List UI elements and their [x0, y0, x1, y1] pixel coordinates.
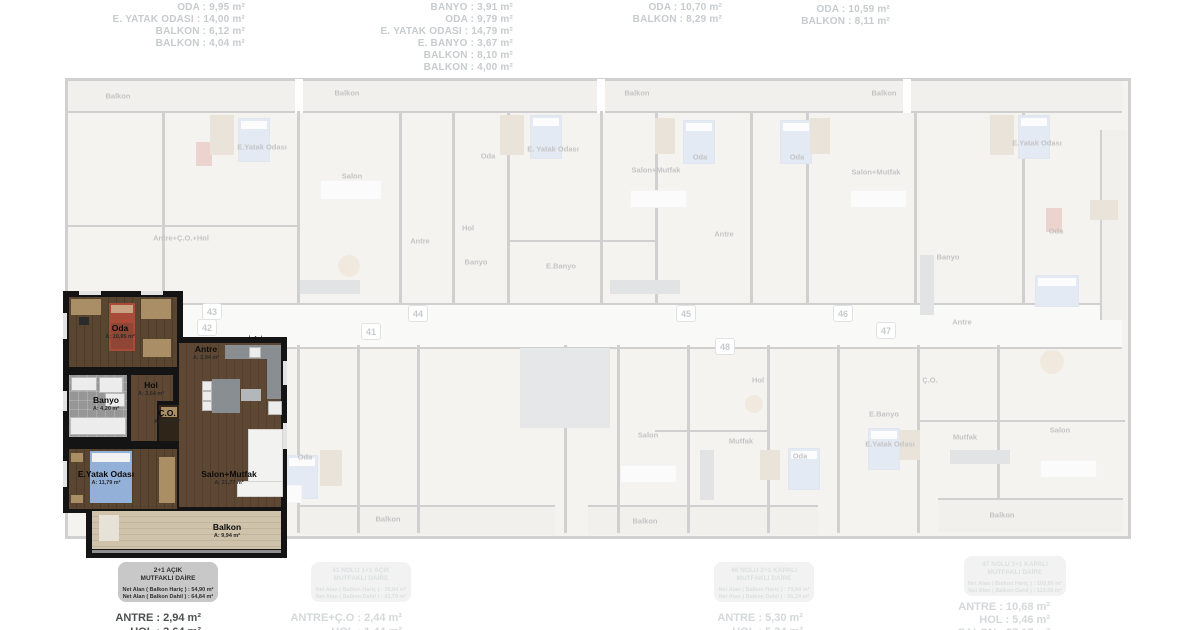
room-area: A: 10,95 m²: [105, 334, 134, 340]
wall: [600, 111, 603, 303]
kitchen-sink: [249, 347, 261, 358]
room-label: Oda A: 10,95 m²: [105, 324, 134, 340]
furniture-sofa: [630, 190, 687, 208]
faded-room-label: Ç.O.: [922, 376, 937, 385]
furniture-wardrobe: [1090, 200, 1118, 220]
net-area-excl: Net Alan ( Balkon Hariç ) : 54,90 m²: [118, 587, 218, 594]
furniture-wardrobe: [210, 115, 234, 155]
wall: [687, 345, 690, 533]
faded-room-label: Salon+Mutfak: [852, 168, 901, 177]
faded-room-label: Salon+Mutfak: [632, 166, 681, 175]
room-label: Balkon A: 9,94 m²: [213, 523, 241, 539]
unit-type-line1: 2+1 AÇIK: [118, 567, 218, 575]
area-list-line: E. BANYO : 3,67 m²: [263, 38, 513, 49]
room-label: Salon+Mutfak A: 21,77 m²: [201, 470, 257, 486]
furniture-nightstand: [71, 453, 83, 462]
stair-core: [520, 348, 610, 428]
fridge: [268, 401, 282, 415]
room-name: Salon+Mutfak: [201, 470, 257, 480]
faded-room-label: Salon: [638, 431, 658, 440]
unit-number-plate[interactable]: 41: [361, 323, 381, 340]
balcony-gap: [597, 79, 605, 113]
stove: [241, 389, 261, 401]
highlighted-unit[interactable]: ⊢◆⊣ Oda A: 10,95 m² Antre A: 2,94 m² Hol…: [63, 291, 287, 558]
unit-number-plate[interactable]: 43: [202, 303, 222, 320]
wall: [655, 430, 767, 432]
washing-machine: [99, 377, 123, 393]
faded-room-label: E.Yatak Odası: [865, 440, 915, 449]
unit-info-box[interactable]: 47 NOLU 3+1 KAPALI MUTFAKLI DAİRE Net Al…: [964, 556, 1066, 596]
faded-room-label: Balkon: [334, 89, 359, 98]
furniture-wardrobe: [655, 118, 675, 154]
selected-unit-room-line: ANTRE : 2,94 m²: [1, 612, 201, 624]
top-balcony-strip: [68, 81, 1122, 113]
bottom-balcony-strip: [588, 505, 818, 535]
room-name: Ç.O.: [154, 409, 180, 419]
furniture-wardrobe: [990, 115, 1014, 155]
window: [63, 391, 67, 411]
room-name: Antre: [193, 345, 219, 355]
wall: [917, 420, 1125, 422]
furniture-bed: [238, 118, 270, 162]
area-list-line: ODA : 9,95 m²: [0, 2, 245, 13]
wall: [767, 345, 770, 533]
wall: [452, 111, 455, 303]
room-area: A: 3,61 m²: [154, 419, 180, 425]
unit-type-line1: 47 NOLU 3+1 KAPALI: [964, 561, 1066, 569]
furniture-wardrobe: [320, 450, 342, 486]
furniture-bed: [1018, 115, 1050, 159]
faded-room-label: Hol: [752, 376, 764, 385]
area-list-line: E. YATAK ODASI : 14,00 m²: [0, 14, 245, 25]
area-list-line: BALKON : 6,12 m²: [0, 26, 245, 37]
furniture-wardrobe: [141, 299, 171, 319]
furniture-sofa: [850, 190, 907, 208]
kitchen-counter: [300, 280, 360, 294]
unit-room-line: HOL : 1,44 m²: [202, 626, 402, 630]
furniture-sofa: [320, 180, 382, 200]
room-name: Oda: [105, 324, 134, 334]
room-label: Antre A: 2,94 m²: [193, 345, 219, 361]
unit-type-line2: MUTFAKLI DAİRE: [714, 575, 814, 583]
wall: [837, 345, 840, 533]
faded-room-label: Mutfak: [953, 433, 977, 442]
window: [141, 291, 163, 295]
net-area-incl: Net Alan ( Balkon Dahil ) : 43,79 m²: [311, 594, 411, 601]
unit-number-plate[interactable]: 47: [876, 322, 896, 339]
wall: [68, 225, 297, 227]
unit-number-plate[interactable]: 46: [833, 305, 853, 322]
room-area: A: 3,64 m²: [138, 391, 164, 397]
faded-room-label: Balkon: [871, 89, 896, 98]
furniture-bed: [1035, 275, 1079, 307]
area-list-line: BALKON : 4,00 m²: [263, 62, 513, 73]
room-area: A: 2,94 m²: [193, 355, 219, 361]
faded-room-label: E.Banyo: [869, 410, 899, 419]
unit-type-line2: MUTFAKLI DAİRE: [964, 569, 1066, 577]
wall: [357, 345, 360, 533]
bed-pillow: [111, 305, 133, 313]
kitchen-counter: [610, 280, 680, 294]
unit-type-line1: 41 NOLU 1+1 AÇIK: [311, 567, 411, 575]
faded-room-label: Banyo: [937, 253, 960, 262]
furniture-desk: [71, 299, 101, 315]
unit-number-plate[interactable]: 45: [676, 305, 696, 322]
wall: [297, 111, 300, 303]
faded-room-label: Oda: [793, 452, 808, 461]
bar-stool: [202, 381, 212, 391]
faded-room-label: Balkon: [375, 515, 400, 524]
faded-room-label: E.Banyo: [546, 262, 576, 271]
unit-info-box[interactable]: 46 NOLU 2+1 KAPALI MUTFAKLI DAİRE Net Al…: [714, 562, 814, 602]
faded-room-label: E.Yatak Odası: [237, 143, 287, 152]
wall: [507, 240, 655, 242]
faded-room-label: Hol: [462, 224, 474, 233]
area-list-line: E. YATAK ODASI : 14,79 m²: [263, 26, 513, 37]
bar-stool: [202, 401, 212, 411]
faded-room-label: Salon: [342, 172, 362, 181]
kitchen-counter: [267, 345, 281, 399]
room-label: E.Yatak Odası A: 11,79 m²: [78, 470, 134, 486]
unit-number-plate[interactable]: 42: [197, 319, 217, 336]
faded-room-label: Oda: [1049, 227, 1064, 236]
furniture-table: [745, 395, 763, 413]
furniture-bed: [868, 428, 900, 470]
kitchen-counter: [700, 450, 714, 500]
net-area-incl: Net Alan ( Balkon Dahil ) : 95,34 m²: [714, 594, 814, 601]
net-area-incl: Net Alan ( Balkon Dahil ) : 64,84 m²: [118, 594, 218, 601]
balcony-gap: [903, 79, 911, 113]
unit-type-line1: 46 NOLU 2+1 KAPALI: [714, 567, 814, 575]
window: [79, 291, 101, 295]
balcony-gap: [295, 79, 303, 113]
unit-room-line: HOL : 5,46 m²: [850, 614, 1050, 626]
wall: [399, 111, 402, 303]
bathroom-sink: [71, 377, 97, 391]
window: [283, 361, 287, 385]
bar-stool: [202, 391, 212, 401]
unit-room-line: HOL : 5,34 m²: [603, 626, 803, 630]
unit-number-plate[interactable]: 44: [408, 305, 428, 322]
window: [63, 313, 67, 339]
unit-room-line: ANTRE+Ç.O : 2,44 m²: [202, 612, 402, 624]
room-balkon-floor: [92, 511, 281, 549]
unit-type-line2: MUTFAKLI DAİRE: [118, 575, 218, 583]
area-list-line: BALKON : 8,10 m²: [263, 50, 513, 61]
faded-room-label: Salon: [1050, 426, 1070, 435]
net-area-incl: Net Alan ( Balkon Dahil ) : 119,56 m²: [964, 588, 1066, 595]
faded-room-label: Oda: [481, 152, 496, 161]
net-area-excl: Net Alan ( Balkon Hariç ) : 35,84 m²: [311, 587, 411, 594]
selected-unit-info-box[interactable]: 2+1 AÇIK MUTFAKLI DAİRE Net Alan ( Balko…: [118, 562, 218, 602]
faded-room-label: Antre+Ç.O.+Hol: [153, 234, 209, 243]
faded-room-label: Oda: [693, 153, 708, 162]
faded-room-label: E. Yatak Odası: [527, 145, 579, 154]
faded-room-label: Balkon: [624, 89, 649, 98]
area-list-line: ODA : 10,59 m²: [640, 4, 890, 15]
window: [63, 461, 67, 487]
kitchen-counter: [950, 450, 1010, 464]
furniture-table: [338, 255, 360, 277]
lounge-chair: [99, 515, 119, 541]
balcony-rail: [92, 550, 281, 553]
room-label: Hol A: 3,64 m²: [138, 381, 164, 397]
kitchen-island: [212, 379, 240, 413]
faded-room-label: Balkon: [989, 511, 1014, 520]
furniture-table: [1040, 350, 1064, 374]
net-area-excl: Net Alan ( Balkon Hariç ) : 79,94 m²: [714, 587, 814, 594]
faded-room-label: Balkon: [105, 92, 130, 101]
furniture-wardrobe: [810, 118, 830, 154]
room-name: Balkon: [213, 523, 241, 533]
selected-unit-room-line: HOL : 3,64 m²: [1, 626, 201, 630]
unit-number-plate[interactable]: 48: [715, 338, 735, 355]
furniture-sofa: [620, 465, 677, 483]
dimension-marker-icon: ⊢◆⊣: [249, 335, 261, 342]
furniture-chair: [79, 317, 89, 325]
bottom-balcony-strip: [938, 498, 1123, 532]
right-balcony-strip: [1100, 130, 1127, 320]
furniture-wardrobe: [760, 450, 780, 480]
wall: [162, 111, 165, 303]
unit-room-line: ANTRE : 10,68 m²: [850, 601, 1050, 613]
wall: [417, 345, 420, 533]
wall: [997, 345, 1000, 500]
area-list-line: BALKON : 8,11 m²: [640, 16, 890, 27]
faded-room-label: Balkon: [632, 517, 657, 526]
room-area: A: 21,77 m²: [201, 480, 257, 486]
faded-room-label: Mutfak: [729, 437, 753, 446]
furniture-nightstand: [71, 495, 83, 503]
wall: [914, 111, 917, 303]
faded-room-label: Banyo: [465, 258, 488, 267]
furniture-wardrobe: [159, 457, 175, 503]
unit-info-box[interactable]: 41 NOLU 1+1 AÇIK MUTFAKLI DAİRE Net Alan…: [311, 562, 411, 602]
room-name: Banyo: [93, 396, 119, 406]
room-area: A: 9,94 m²: [213, 533, 241, 539]
room-label: Ç.O. A: 3,61 m²: [154, 409, 180, 425]
room-label: Banyo A: 4,20 m²: [93, 396, 119, 412]
unit-room-line: ANTRE : 5,30 m²: [603, 612, 803, 624]
floorplan-page: Balkon Balkon Balkon Balkon E.Yatak Odas…: [0, 0, 1200, 630]
faded-room-label: E.Yatak Odası: [1012, 139, 1062, 148]
faded-room-label: Oda: [298, 453, 313, 462]
room-area: A: 4,20 m²: [93, 406, 119, 412]
wall: [617, 345, 620, 533]
window: [283, 423, 287, 449]
furniture-dresser: [143, 339, 171, 357]
room-area: A: 11,79 m²: [78, 480, 134, 486]
faded-room-label: Antre: [410, 237, 430, 246]
unit-type-line2: MUTFAKLI DAİRE: [311, 575, 411, 583]
area-list-line: BALKON : 4,04 m²: [0, 38, 245, 49]
wall: [750, 111, 753, 303]
bathtub: [70, 417, 126, 435]
net-area-excl: Net Alan ( Balkon Hariç ) : 103,80 m²: [964, 581, 1066, 588]
room-name: Hol: [138, 381, 164, 391]
room-name: E.Yatak Odası: [78, 470, 134, 480]
faded-room-label: Oda: [790, 153, 805, 162]
bottom-balcony-strip: [300, 505, 555, 535]
kitchen-counter: [920, 255, 934, 315]
furniture-sofa: [1040, 460, 1097, 478]
wall: [297, 345, 300, 533]
faded-room-label: Antre: [714, 230, 734, 239]
furniture-wardrobe: [500, 115, 524, 155]
bed-pillow: [92, 453, 130, 462]
faded-room-label: Antre: [952, 318, 972, 327]
